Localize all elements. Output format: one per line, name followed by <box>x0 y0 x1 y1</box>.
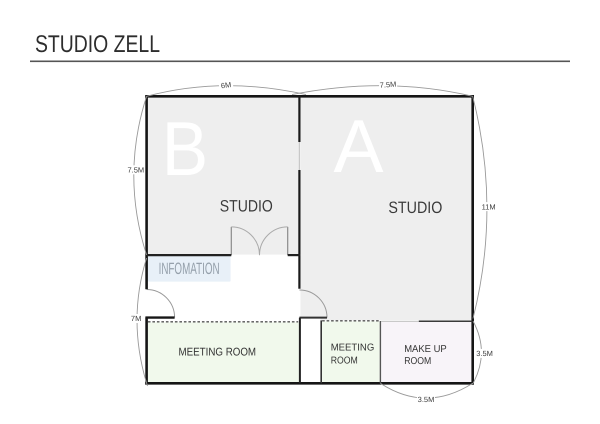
svg-text:ROOM: ROOM <box>404 356 431 367</box>
svg-text:7.5M: 7.5M <box>127 166 144 175</box>
svg-text:B: B <box>162 107 208 192</box>
svg-text:7M: 7M <box>131 314 141 323</box>
svg-text:INFOMATION: INFOMATION <box>159 260 220 278</box>
svg-text:A: A <box>333 104 383 188</box>
svg-text:MEETING: MEETING <box>331 343 375 354</box>
svg-text:11M: 11M <box>482 202 496 211</box>
svg-text:STUDIO ZELL: STUDIO ZELL <box>35 31 160 58</box>
svg-text:ROOM: ROOM <box>331 355 358 366</box>
svg-text:MAKE UP: MAKE UP <box>404 344 447 355</box>
svg-text:MEETING ROOM: MEETING ROOM <box>179 347 257 359</box>
svg-text:STUDIO: STUDIO <box>220 198 273 216</box>
svg-text:7.5M: 7.5M <box>379 80 396 90</box>
svg-text:3.5M: 3.5M <box>476 349 493 358</box>
svg-text:3.5M: 3.5M <box>418 395 435 404</box>
svg-text:6M: 6M <box>220 80 232 90</box>
svg-text:STUDIO: STUDIO <box>388 199 442 217</box>
